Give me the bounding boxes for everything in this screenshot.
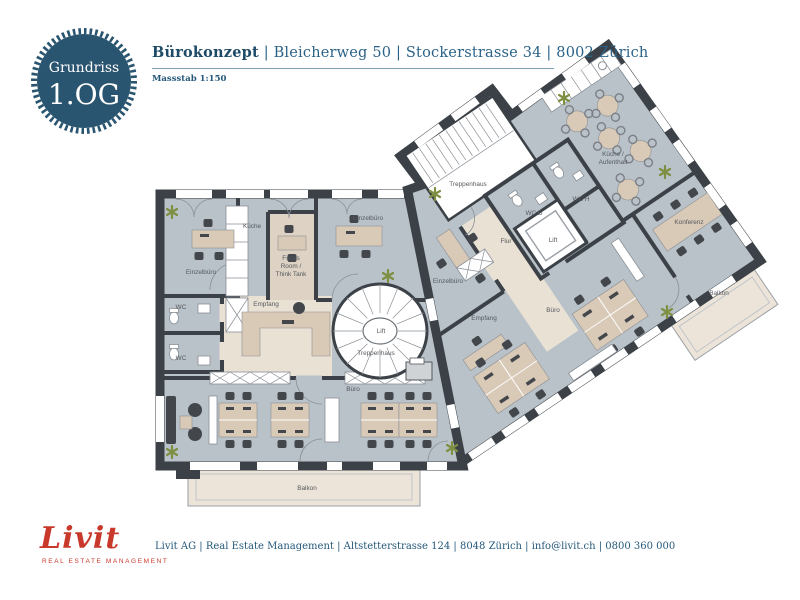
floorplan-page: Einzelbüro Küche Focus Room / Think Tank… xyxy=(0,0,800,600)
sink-icon xyxy=(198,356,210,365)
room-label-focus-1: Focus xyxy=(282,255,299,262)
livit-tagline: Real Estate Management xyxy=(42,558,168,565)
room-label-wc-bottom: WC xyxy=(176,355,187,362)
room-label-wc-top: WC xyxy=(176,304,187,311)
room-label-einzelbuero-left: Einzelbüro xyxy=(186,269,217,276)
page-title: Bürokonzept | Bleicherweg 50 | Stockerst… xyxy=(152,44,572,61)
room-label-focus-3: Think Tank xyxy=(276,271,308,278)
shelf xyxy=(209,396,217,444)
room-label-balkon-right: Balkon xyxy=(709,290,729,297)
room-label-lift-right: Lift xyxy=(549,237,558,244)
sink-icon xyxy=(198,304,210,313)
room-label-balkon-left: Balkon xyxy=(297,485,317,492)
room-label-focus-2: Room / xyxy=(281,263,302,270)
address-line: | Bleicherweg 50 | Stockerstrasse 34 | 8… xyxy=(264,45,649,61)
room-label-kueche-right-2: Aufenthalt xyxy=(599,159,628,166)
room-label-buero-right: Büro xyxy=(546,307,560,314)
footer: Livit Real Estate Management Livit AG | … xyxy=(0,520,800,580)
room-label-einzelbuero-left2: Einzelbüro xyxy=(353,215,384,222)
cabinet xyxy=(325,398,339,442)
room-label-treppenhaus-right: Treppenhaus xyxy=(449,181,486,188)
project-name: Bürokonzept xyxy=(152,44,259,61)
room-label-kueche-left: Küche xyxy=(243,223,262,230)
room-label-wc-d: WC D xyxy=(525,210,542,217)
header: Bürokonzept | Bleicherweg 50 | Stockerst… xyxy=(152,44,572,84)
room-label-empfang-right: Empfang xyxy=(471,315,497,322)
room-label-einzelbuero-right: Einzelbüro xyxy=(433,278,464,285)
room-label-kueche-right-1: Küche / xyxy=(602,151,624,158)
badge-title: Grundriss xyxy=(49,60,119,76)
livit-logo: Livit xyxy=(40,526,120,552)
room-label-buero-left: Büro xyxy=(346,386,360,393)
badge-floor: 1.OG xyxy=(48,78,120,111)
room-label-treppenhaus-left: Treppenhaus xyxy=(357,350,394,357)
scale-label: Massstab 1:150 xyxy=(152,74,572,84)
footer-contact: Livit AG | Real Estate Management | Alts… xyxy=(155,541,675,552)
room-label-lift-left: Lift xyxy=(377,328,386,335)
room-label-empfang-left: Empfang xyxy=(253,301,279,308)
floor-badge: Grundriss 1.OG xyxy=(28,26,140,138)
room-label-wc-h: WC H xyxy=(572,196,589,203)
room-label-flur: Flur xyxy=(500,238,512,245)
room-label-konferenz: Konferenz xyxy=(674,219,703,226)
header-rule xyxy=(152,68,554,69)
